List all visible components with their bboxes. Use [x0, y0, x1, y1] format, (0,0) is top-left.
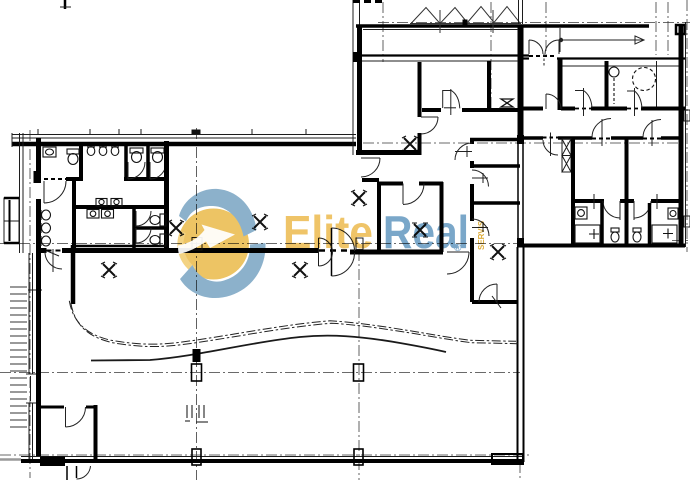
- svg-text:Elite: Elite: [283, 206, 373, 258]
- svg-text:SERVIS: SERVIS: [477, 220, 486, 250]
- svg-text:®: ®: [454, 243, 462, 254]
